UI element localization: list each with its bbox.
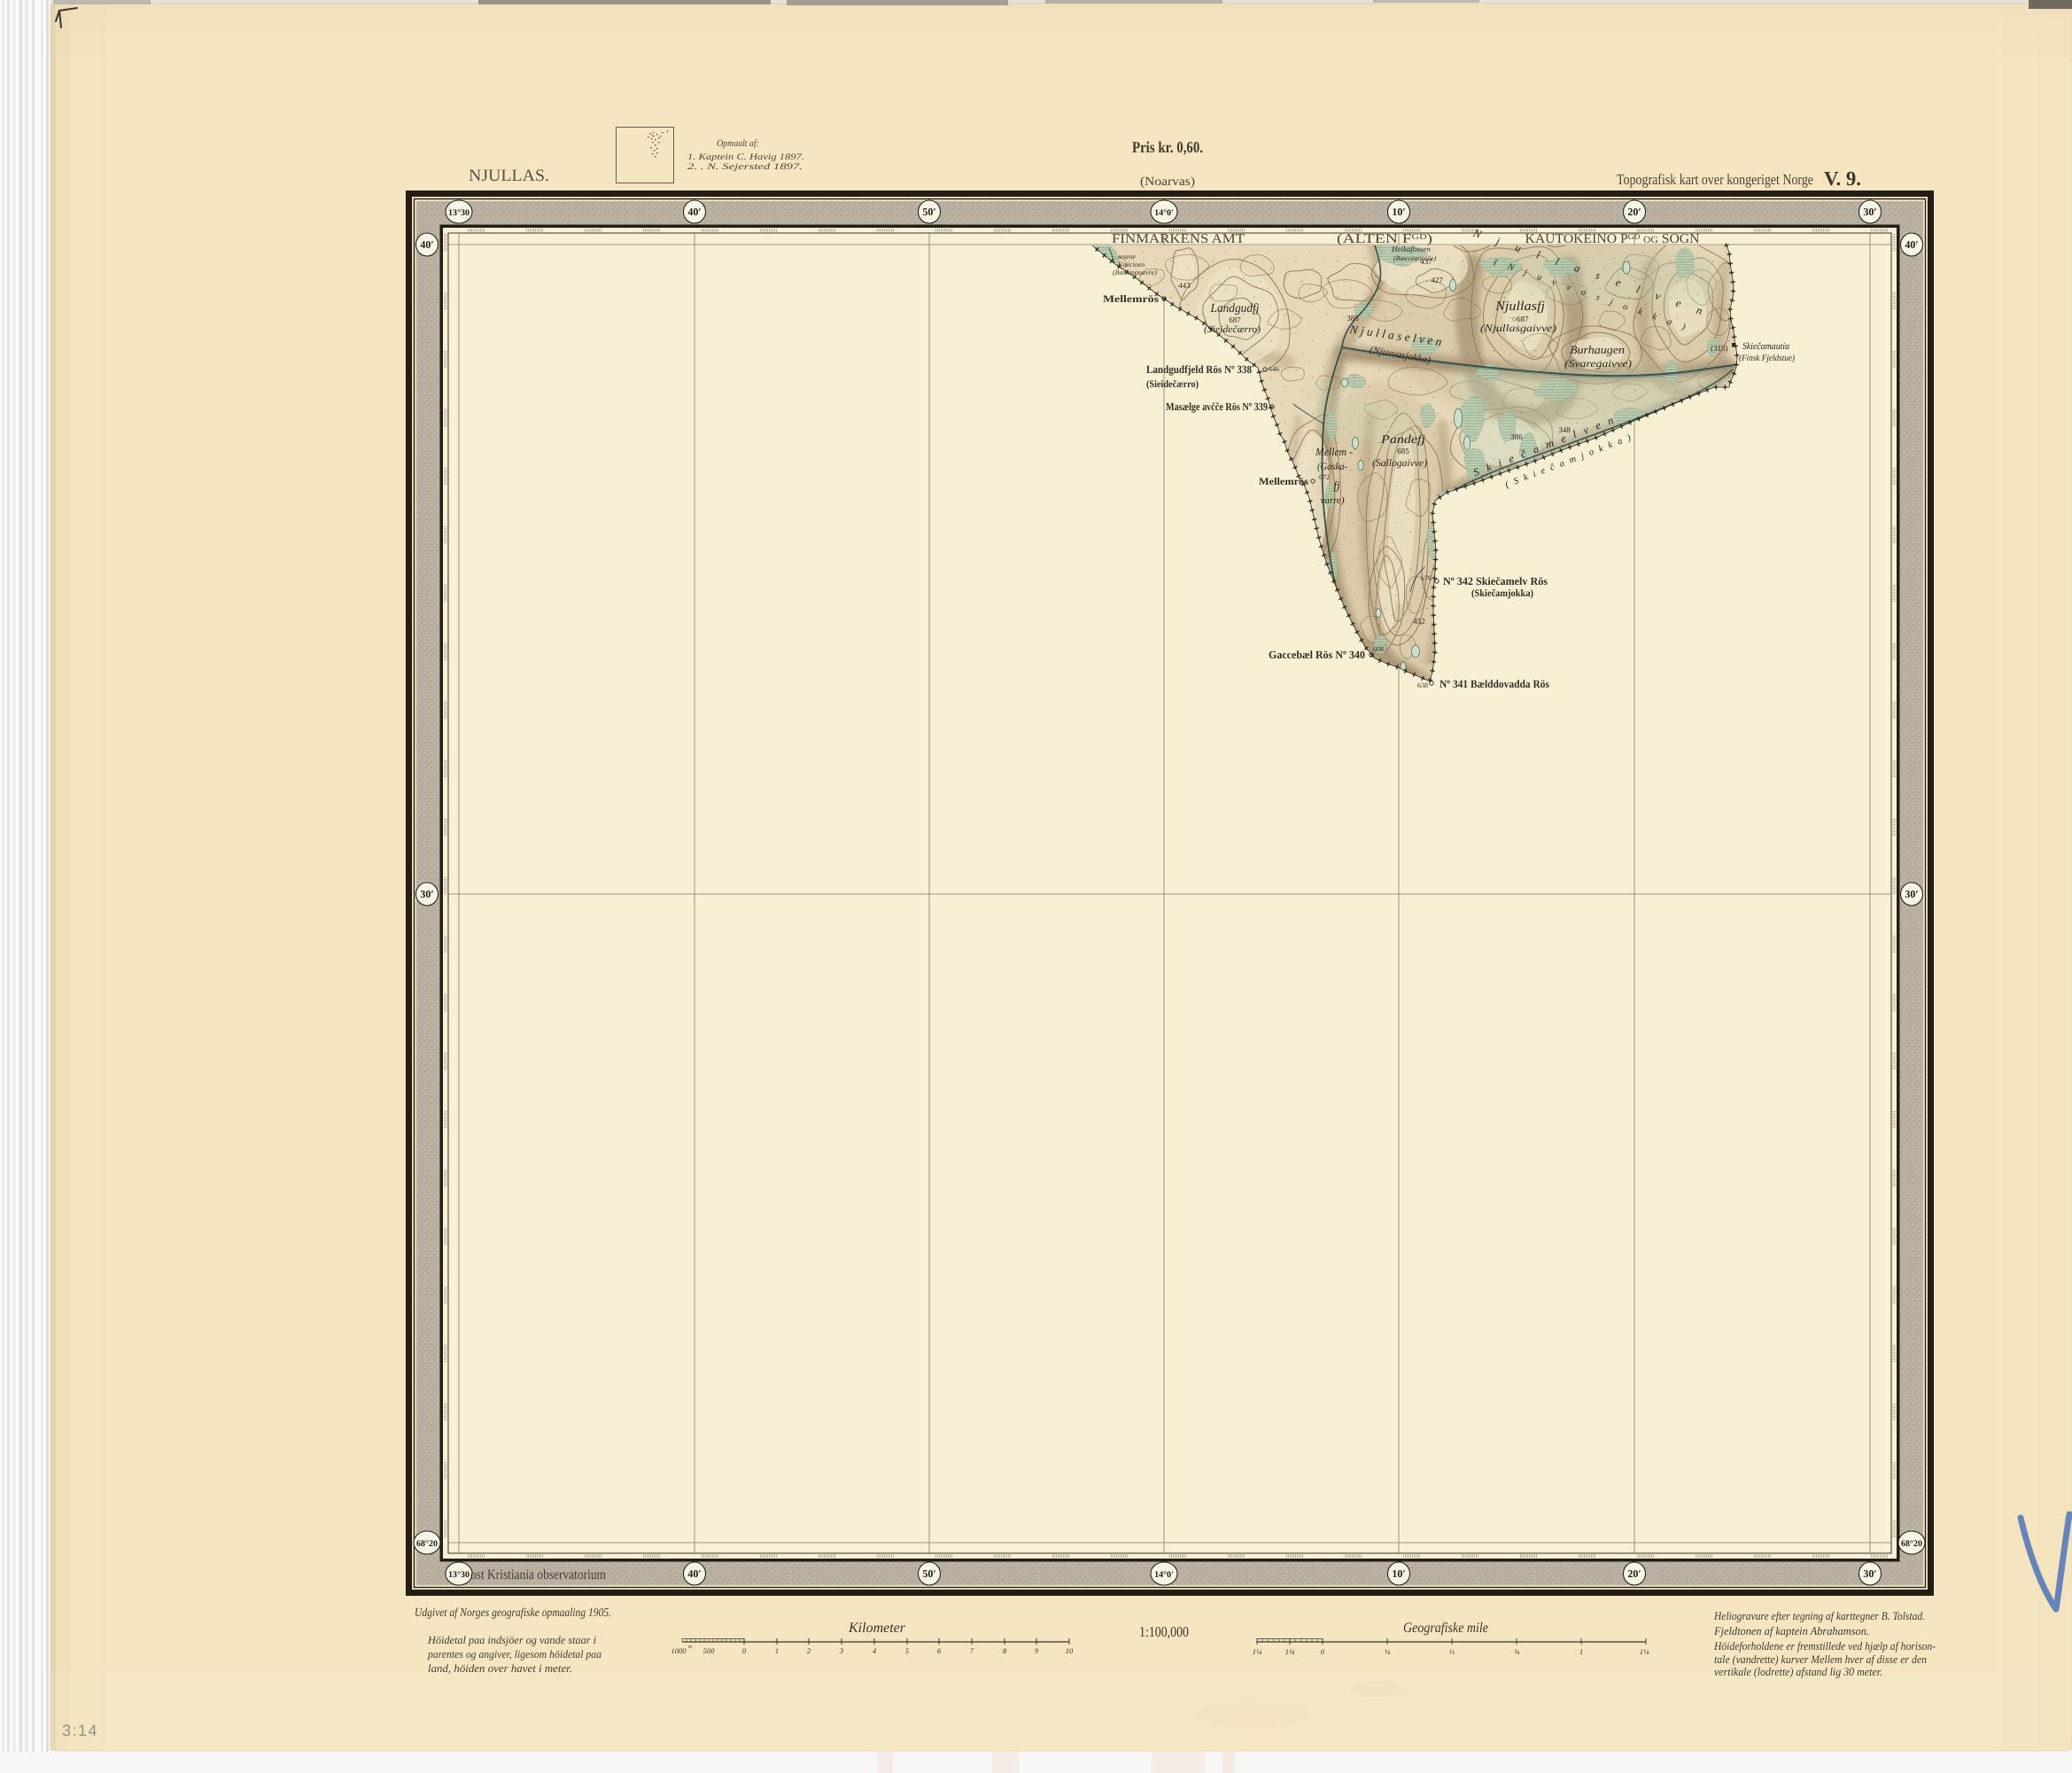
svg-text:land, höiden over havet i: land, höiden over havet i meter. — [428, 1662, 572, 1675]
svg-text:Opmaalt af:: Opmaalt af: — [717, 138, 759, 149]
svg-text:FINMARKENS AMT: FINMARKENS AMT — [1112, 232, 1245, 246]
svg-text:608: 608 — [1373, 645, 1384, 653]
svg-text:fj: fj — [1333, 478, 1340, 492]
svg-text:646: 646 — [1269, 365, 1279, 373]
svg-text:443: 443 — [1178, 281, 1191, 290]
svg-text:427: 427 — [1431, 276, 1443, 284]
svg-text:1: 1 — [775, 1646, 779, 1655]
svg-text:ost Kristiania observatorium: ost Kristiania observatorium — [470, 1567, 606, 1582]
svg-text:30′: 30′ — [1863, 1567, 1876, 1580]
svg-text:(Sallogaivve): (Sallogaivve) — [1372, 458, 1427, 469]
svg-text:40′: 40′ — [687, 206, 701, 218]
svg-text:13°30: 13°30 — [448, 208, 469, 218]
svg-text:Njullasfj: Njullasfj — [1494, 299, 1545, 314]
svg-text:348: 348 — [1558, 425, 1571, 434]
svg-text:V. 9.: V. 9. — [1824, 167, 1861, 190]
svg-text:(Svaregaivve): (Svaregaivve) — [1564, 359, 1632, 369]
svg-text:10′: 10′ — [1392, 1567, 1405, 1580]
svg-text:parentes og angiver, ligeso: parentes og angiver, ligesom höidetal pa… — [427, 1648, 601, 1660]
svg-text:Höidetal paa indsjöer og v: Höidetal paa indsjöer og vande staar i — [427, 1634, 596, 1646]
svg-text:NJULLAS.: NJULLAS. — [469, 167, 549, 185]
svg-text:(Sieidečærro): (Sieidečærro) — [1204, 324, 1261, 335]
svg-text:(Finsk Fjeldstue): (Finsk Fjeldstue) — [1739, 354, 1796, 363]
svg-text:40′: 40′ — [1905, 238, 1918, 251]
svg-text:385: 385 — [1346, 314, 1359, 323]
svg-text:Fjeldtonen af kaptein Abrah: Fjeldtonen af kaptein Abrahamson. — [1713, 1624, 1869, 1637]
svg-text:687: 687 — [1229, 315, 1241, 324]
svg-text:437: 437 — [1420, 257, 1432, 266]
svg-text:1. Kaptein C. Havig 18: 1. Kaptein C. Havig 1897. — [687, 152, 804, 162]
svg-text:Nº 342 Skiečamelv Rös: Nº 342 Skiečamelv Rös — [1443, 575, 1548, 587]
svg-text:¾: ¾ — [1514, 1647, 1520, 1656]
svg-text:2. . N. Sejersted: 2. . N. Sejersted 1897. — [687, 162, 803, 172]
svg-text:(315): (315) — [1711, 344, 1728, 353]
svg-text:Koecioen: Koecioen — [1117, 261, 1145, 268]
svg-text:10′: 10′ — [1392, 206, 1405, 218]
svg-text:Nº 341 Bælddovadda Rös: Nº 341 Bælddovadda Rös — [1440, 678, 1549, 690]
svg-text:50′: 50′ — [922, 206, 935, 218]
svg-text:(Bænonosævre): (Bænonosævre) — [1113, 268, 1157, 276]
svg-text:Gaccebæl Rös Nº 340: Gaccebæl Rös Nº 340 — [1269, 649, 1365, 661]
svg-text:30′: 30′ — [1905, 888, 1918, 900]
svg-text:½: ½ — [1449, 1647, 1455, 1656]
svg-text:3:14: 3:14 — [62, 1722, 98, 1739]
svg-text:14°0′: 14°0′ — [1154, 1570, 1174, 1580]
svg-text:Udgivet af Norges geografis: Udgivet af Norges geografiske opmaaling … — [415, 1606, 611, 1619]
svg-text:¼: ¼ — [1385, 1647, 1391, 1656]
svg-text:672: 672 — [1319, 473, 1330, 481]
svg-text:1:100,000: 1:100,000 — [1139, 1623, 1189, 1640]
svg-text:Landgudfjeld Rös Nº 338: Landgudfjeld Rös Nº 338 — [1146, 363, 1252, 376]
svg-text:1000: 1000 — [671, 1646, 687, 1655]
svg-text:676: 676 — [1421, 574, 1432, 582]
svg-text:m: m — [688, 1645, 693, 1650]
svg-text:1: 1 — [666, 129, 669, 135]
svg-text:ɪesene: ɪesene — [1117, 253, 1136, 261]
svg-text:Geografiske mile: Geografiske mile — [1403, 1621, 1488, 1636]
svg-text:30′: 30′ — [420, 888, 433, 900]
svg-text:Heliogravure efter tegning: Heliogravure efter tegning af karttegner… — [1713, 1609, 1925, 1622]
svg-text:452: 452 — [1413, 617, 1425, 626]
svg-text:○687: ○687 — [1512, 315, 1529, 323]
svg-text:20′: 20′ — [1627, 1567, 1641, 1580]
svg-text:638: 638 — [1417, 681, 1428, 689]
svg-text:Burhaugen: Burhaugen — [1570, 343, 1625, 356]
svg-text:Kilometer: Kilometer — [848, 1621, 906, 1636]
svg-text:(Skiečamjokka): (Skiečamjokka) — [1471, 588, 1533, 599]
svg-text:14°0′: 14°0′ — [1154, 208, 1174, 218]
svg-text:KAUTOKEINO Pᴳᴰ OG SOGN: KAUTOKEINO Pᴳᴰ OG SOGN — [1525, 232, 1700, 246]
svg-text:40′: 40′ — [687, 1567, 701, 1580]
svg-text:3: 3 — [839, 1646, 843, 1655]
svg-text:1⅛: 1⅛ — [1285, 1647, 1295, 1656]
svg-text:5: 5 — [905, 1646, 909, 1655]
svg-text:(Njullasgaivve): (Njullasgaivve) — [1480, 323, 1556, 334]
svg-text:1¼: 1¼ — [1253, 1647, 1262, 1656]
svg-text:Pris kr. 0,60.: Pris kr. 0,60. — [1132, 138, 1203, 156]
svg-text:Landgudfj: Landgudfj — [1210, 302, 1260, 315]
svg-text:10: 10 — [1066, 1646, 1074, 1655]
svg-text:tale (vandrette) kurver Mel: tale (vandrette) kurver Mellem hver af d… — [1714, 1652, 1927, 1666]
svg-text:30′: 30′ — [1863, 206, 1876, 218]
svg-text:50′: 50′ — [922, 1567, 935, 1580]
svg-text:20′: 20′ — [1627, 206, 1641, 218]
svg-text:13°30: 13°30 — [448, 1570, 469, 1580]
svg-text:Heikafossen: Heikafossen — [1391, 245, 1431, 253]
svg-text:68°20: 68°20 — [416, 1539, 438, 1549]
svg-text:1¼: 1¼ — [1640, 1647, 1649, 1656]
svg-text:Mellemrös: Mellemrös — [1259, 477, 1309, 487]
svg-text:2: 2 — [651, 132, 654, 137]
svg-text:500: 500 — [703, 1646, 716, 1655]
svg-text:685: 685 — [1397, 447, 1409, 455]
svg-text:(Noarvas): (Noarvas) — [1140, 175, 1195, 189]
svg-text:68°20: 68°20 — [1901, 1539, 1922, 1549]
svg-text:386: 386 — [1510, 432, 1523, 441]
svg-text:Topografisk kart over konge: Topografisk kart over kongeriget Norge — [1617, 171, 1813, 188]
svg-text:Mellemrös: Mellemrös — [1103, 294, 1160, 305]
svg-text:Masælge avčče Rös Nº 339: Masælge avčče Rös Nº 339 — [1166, 400, 1268, 413]
svg-text:(Gaska-: (Gaska- — [1317, 462, 1347, 472]
svg-text:1: 1 — [1579, 1647, 1583, 1656]
svg-text:Skiečamautia: Skiečamautia — [1742, 341, 1789, 352]
svg-text:Pandefj: Pandefj — [1380, 432, 1425, 446]
svg-text:Höideforholdene er fremstill: Höideforholdene er fremstillede ved hjæl… — [1713, 1639, 1936, 1652]
svg-text:40′: 40′ — [420, 238, 433, 251]
svg-text:varre): varre) — [1320, 495, 1344, 506]
svg-text:(Sieidečærro): (Sieidečærro) — [1146, 379, 1199, 390]
svg-text:vertikale (lodrette) afstand: vertikale (lodrette) afstand lig 30 mete… — [1714, 1665, 1882, 1678]
svg-text:Mellem -: Mellem - — [1315, 446, 1353, 458]
